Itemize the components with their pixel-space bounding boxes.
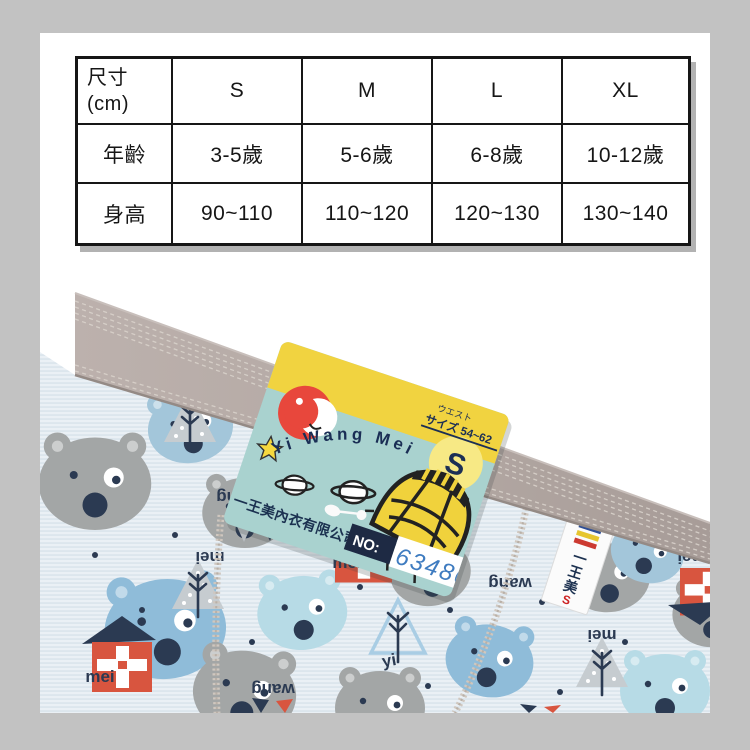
fabric-word-mei: mei	[587, 626, 616, 645]
fabric-word-wang: wang	[251, 680, 295, 699]
size-unit-line2: (cm)	[87, 91, 129, 117]
bear-motif	[335, 667, 425, 713]
page-background: { "page": { "background_color": "#c2c2c2…	[0, 0, 750, 750]
table-header-size-unit: 尺寸 (cm)	[78, 59, 173, 125]
table-header-size-m: M	[303, 59, 433, 125]
size-chart-table: 尺寸 (cm) S M L XL 年齡 3-5歲 5-6歲 6-8歲 10-12…	[75, 56, 691, 246]
fabric-word-mei: mei	[85, 667, 114, 686]
bear-motif	[40, 433, 151, 531]
row-label-height: 身高	[78, 184, 173, 243]
table-header-size-s: S	[173, 59, 303, 125]
height-value-m: 110~120	[303, 184, 433, 243]
table-header-size-l: L	[433, 59, 563, 125]
height-value-xl: 130~140	[563, 184, 688, 243]
fabric-word-wang: wang	[488, 574, 532, 593]
height-value-s: 90~110	[173, 184, 303, 243]
age-value-m: 5-6歲	[303, 125, 433, 184]
size-unit-line1: 尺寸	[87, 65, 128, 91]
age-value-l: 6-8歲	[433, 125, 563, 184]
age-value-s: 3-5歲	[173, 125, 303, 184]
age-value-xl: 10-12歲	[563, 125, 688, 184]
row-label-age: 年齡	[78, 125, 173, 184]
table-header-size-xl: XL	[563, 59, 688, 125]
height-value-l: 120~130	[433, 184, 563, 243]
product-photo: wang wang wang mei mei mei mei mei yi	[40, 280, 710, 713]
bear-motif	[620, 650, 710, 713]
